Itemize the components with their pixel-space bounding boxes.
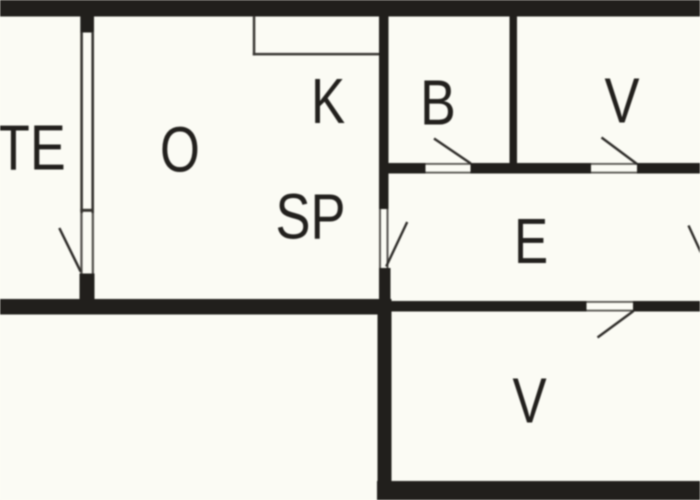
svg-text:B: B (420, 66, 456, 139)
svg-text:K: K (311, 67, 345, 138)
svg-text:V: V (605, 66, 640, 137)
svg-text:O: O (160, 115, 200, 186)
svg-text:V: V (513, 366, 547, 437)
svg-text:TE: TE (0, 111, 66, 184)
svg-text:E: E (514, 207, 548, 278)
svg-text:SP: SP (276, 182, 346, 253)
